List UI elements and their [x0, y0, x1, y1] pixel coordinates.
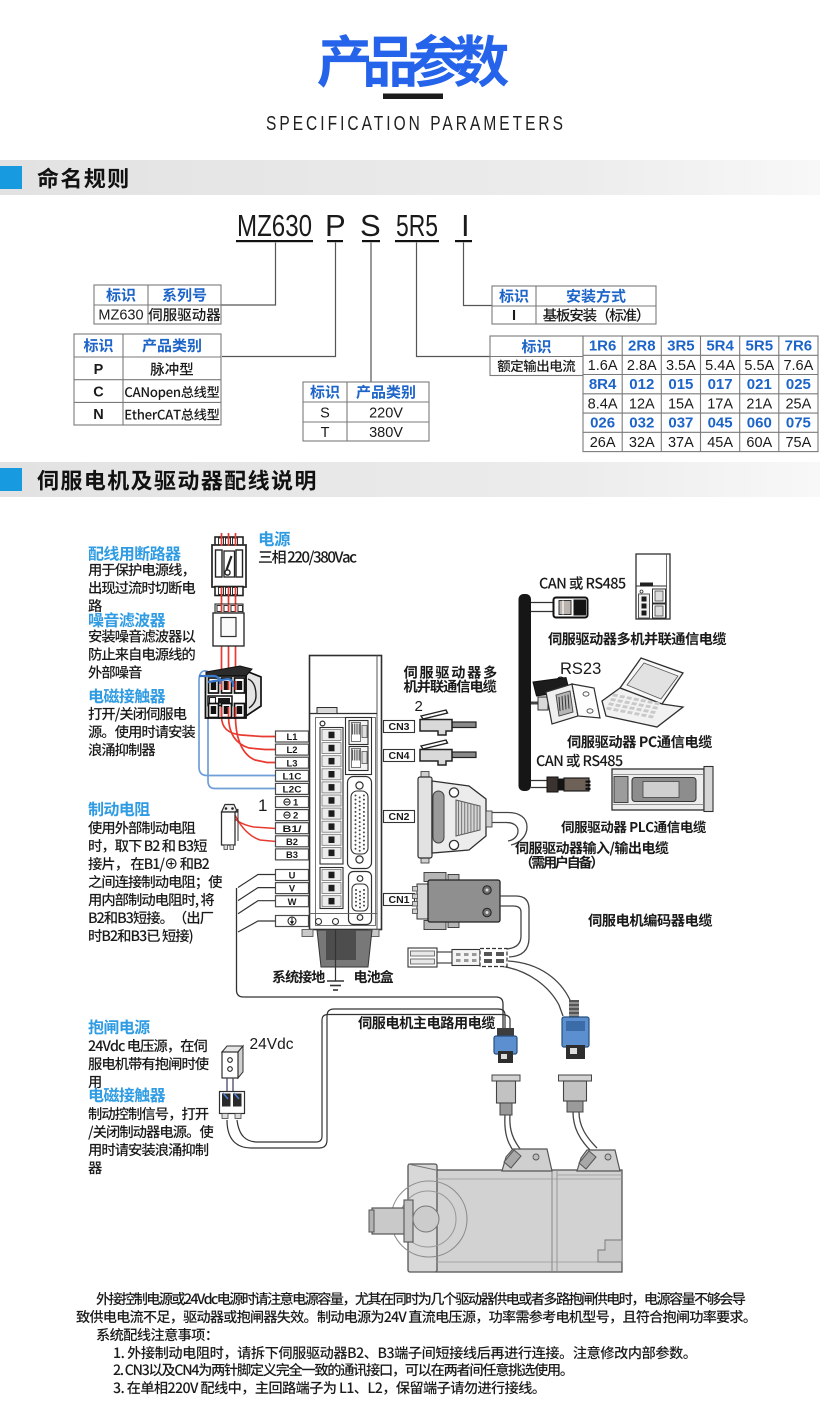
- svg-text:8.4A: 8.4A: [588, 396, 618, 412]
- svg-text:B2: B2: [286, 836, 298, 847]
- svg-text:037: 037: [668, 415, 693, 432]
- svg-text:380V: 380V: [369, 425, 403, 441]
- svg-text:3R5: 3R5: [667, 338, 695, 355]
- svg-text:CN2: CN2: [388, 811, 409, 823]
- svg-text:I: I: [512, 308, 516, 324]
- svg-text:021: 021: [747, 376, 772, 393]
- svg-text:P: P: [94, 362, 104, 378]
- svg-text:I: I: [461, 208, 470, 243]
- svg-text:2: 2: [415, 698, 423, 715]
- svg-text:025: 025: [786, 376, 811, 393]
- svg-text:12A: 12A: [629, 396, 655, 412]
- svg-text:5R5: 5R5: [396, 208, 438, 243]
- svg-text:U: U: [289, 870, 296, 881]
- svg-text:MZ630: MZ630: [98, 308, 143, 324]
- svg-text:5.4A: 5.4A: [705, 358, 735, 374]
- svg-text:075: 075: [786, 415, 811, 432]
- svg-text:L2: L2: [287, 744, 298, 755]
- svg-text:S: S: [320, 406, 330, 422]
- svg-text:75A: 75A: [785, 435, 811, 451]
- svg-text:60A: 60A: [746, 435, 772, 451]
- svg-text:RS23: RS23: [560, 660, 601, 678]
- svg-text:220V: 220V: [369, 406, 403, 422]
- svg-text:2.8A: 2.8A: [627, 358, 657, 374]
- svg-text:1.6A: 1.6A: [588, 358, 618, 374]
- svg-text:CN1: CN1: [388, 894, 409, 906]
- svg-text:045: 045: [708, 415, 733, 432]
- svg-text:24Vdc: 24Vdc: [250, 1036, 294, 1053]
- svg-text:3.5A: 3.5A: [666, 358, 696, 374]
- svg-text:8R4: 8R4: [589, 376, 617, 393]
- svg-text:45A: 45A: [707, 435, 733, 451]
- svg-text:2: 2: [293, 811, 298, 822]
- svg-text:C: C: [93, 385, 104, 401]
- svg-text:T: T: [321, 425, 330, 441]
- svg-text:L2C: L2C: [283, 784, 302, 795]
- svg-text:SPECIFICATION PARAMETERS: SPECIFICATION PARAMETERS: [266, 112, 566, 135]
- svg-text:L1: L1: [287, 731, 298, 742]
- svg-text:012: 012: [629, 376, 654, 393]
- svg-text:17A: 17A: [707, 396, 733, 412]
- svg-text:032: 032: [629, 415, 654, 432]
- svg-text:1R6: 1R6: [589, 338, 617, 355]
- svg-text:7.6A: 7.6A: [783, 358, 813, 374]
- svg-text:5R5: 5R5: [746, 338, 774, 355]
- svg-text:015: 015: [668, 376, 693, 393]
- svg-text:MZ630: MZ630: [237, 208, 312, 243]
- svg-text:B3: B3: [286, 849, 298, 860]
- svg-text:2R8: 2R8: [628, 338, 656, 355]
- svg-text:CN3: CN3: [388, 721, 409, 733]
- svg-text:15A: 15A: [668, 396, 694, 412]
- svg-text:1: 1: [293, 798, 299, 809]
- svg-text:N: N: [93, 407, 103, 423]
- svg-text:B1/: B1/: [283, 823, 303, 834]
- svg-text:L1C: L1C: [283, 770, 302, 781]
- svg-text:26A: 26A: [590, 435, 616, 451]
- svg-text:026: 026: [590, 415, 615, 432]
- svg-text:5R4: 5R4: [706, 338, 734, 355]
- svg-text:1: 1: [258, 796, 267, 815]
- svg-text:32A: 32A: [629, 435, 655, 451]
- svg-text:37A: 37A: [668, 435, 694, 451]
- svg-text:P: P: [325, 208, 346, 243]
- svg-text:S: S: [360, 208, 381, 243]
- svg-text:21A: 21A: [746, 396, 772, 412]
- svg-text:017: 017: [708, 376, 733, 393]
- svg-text:7R6: 7R6: [785, 338, 813, 355]
- svg-text:25A: 25A: [785, 396, 811, 412]
- svg-text:V: V: [289, 883, 296, 894]
- svg-text:L3: L3: [287, 757, 298, 768]
- svg-text:5.5A: 5.5A: [744, 358, 774, 374]
- svg-text:W: W: [288, 896, 297, 907]
- svg-text:CN4: CN4: [388, 750, 409, 762]
- svg-text:060: 060: [747, 415, 772, 432]
